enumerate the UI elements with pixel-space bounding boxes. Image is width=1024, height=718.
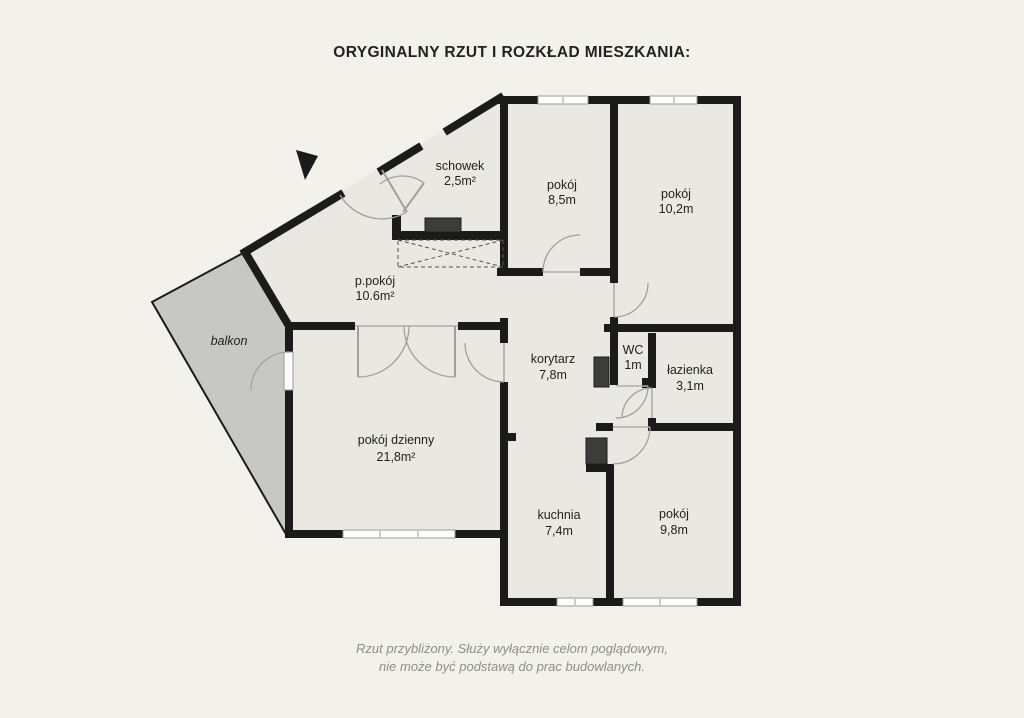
room-label-korytarz: korytarz — [531, 352, 575, 366]
duct-kitchen — [586, 438, 607, 464]
room-label-pokoj-85: pokój — [547, 178, 577, 192]
room-label-balkon: balkon — [211, 334, 248, 348]
room-label-kuchnia: kuchnia — [537, 508, 580, 522]
disclaimer: Rzut przybliżony. Służy wyłącznie celom … — [0, 640, 1024, 676]
room-area-lazienka: 3,1m — [676, 379, 704, 393]
room-area-pokoj-102: 10,2m — [659, 202, 694, 216]
room-label-lazienka: łazienka — [667, 363, 713, 377]
room-area-korytarz: 7,8m — [539, 368, 567, 382]
room-area-ppokoj: 10.6m² — [356, 289, 395, 303]
room-area-pokoj-98: 9,8m — [660, 523, 688, 537]
duct-wc — [594, 357, 609, 387]
room-area-schowek: 2,5m² — [444, 174, 476, 188]
room-label-pokoj-98: pokój — [659, 507, 689, 521]
disclaimer-line-1: Rzut przybliżony. Służy wyłącznie celom … — [0, 640, 1024, 658]
room-label-ppokoj: p.pokój — [355, 274, 395, 288]
entrance-arrow-icon — [296, 150, 318, 180]
room-area-pokoj-dzienny: 21,8m² — [377, 450, 416, 464]
room-label-schowek: schowek — [436, 159, 485, 173]
room-label-wc: WC — [623, 343, 644, 357]
room-area-wc: 1m — [624, 358, 641, 372]
disclaimer-line-2: nie może być podstawą do prac budowlanyc… — [0, 658, 1024, 676]
room-area-pokoj-85: 8,5m — [548, 193, 576, 207]
page-title: ORYGINALNY RZUT I ROZKŁAD MIESZKANIA: — [0, 44, 1024, 62]
storage-shelf — [425, 218, 461, 232]
balcony-door — [284, 352, 293, 390]
room-label-pokoj-dzienny: pokój dzienny — [358, 433, 435, 447]
room-area-kuchnia: 7,4m — [545, 524, 573, 538]
room-label-pokoj-102: pokój — [661, 187, 691, 201]
floor-plan: schowek 2,5m² pokój 8,5m pokój 10,2m p.p… — [0, 85, 1024, 620]
